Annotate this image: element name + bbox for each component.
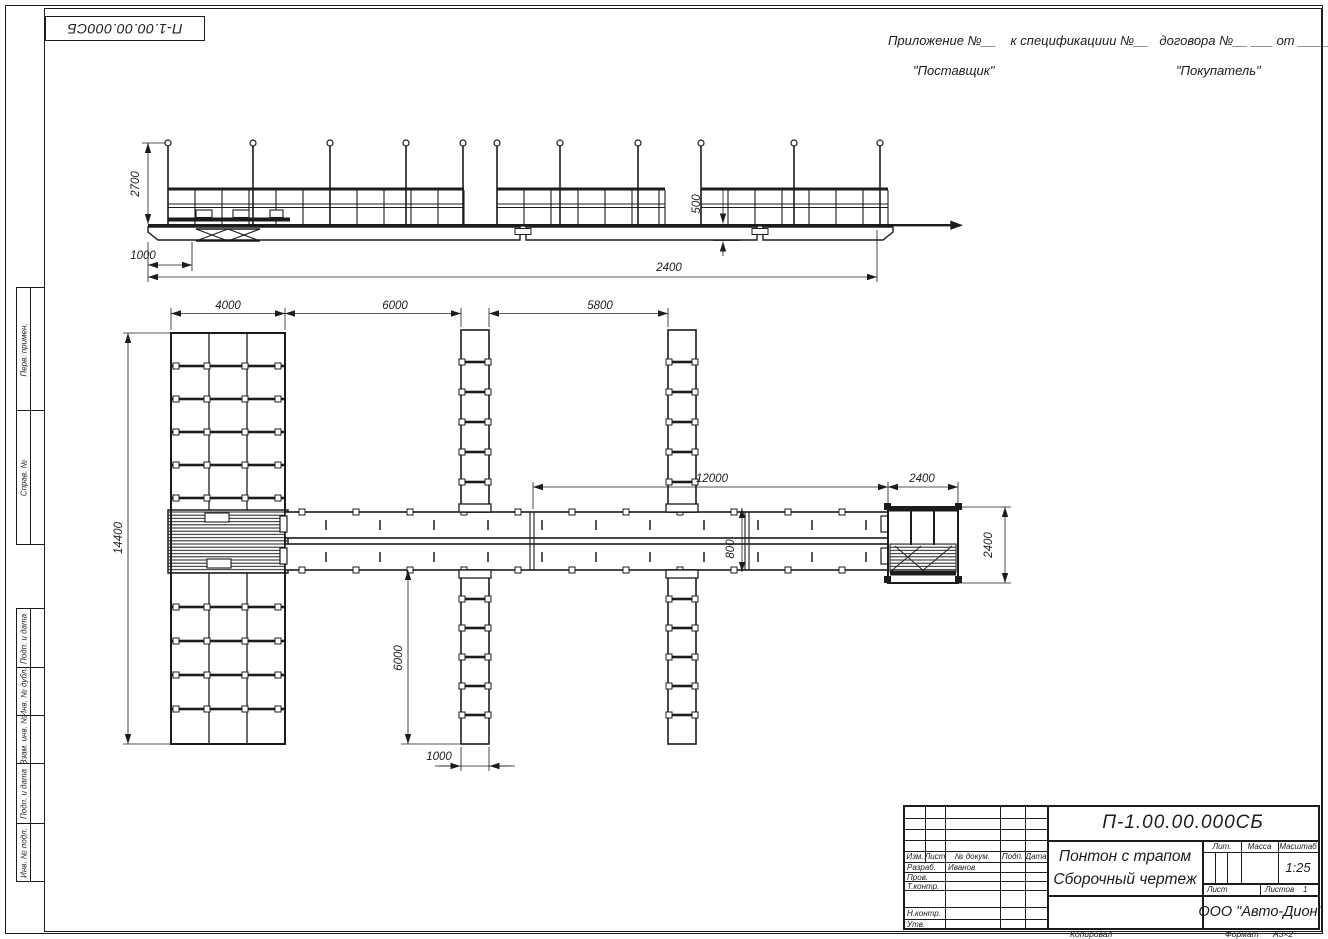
dim-plan-walkway-len: 12000 bbox=[696, 473, 729, 485]
mass-label: Масса bbox=[1241, 840, 1278, 852]
frame-column-sprav-no: Справ. № bbox=[16, 410, 45, 545]
doc-number-box: П-1.00.00.000СБ bbox=[45, 16, 205, 41]
frame-column-inv-dubl: Инв. № дубл. bbox=[16, 667, 45, 717]
titleblock-title: Понтон с трапом Сборочный чертеж bbox=[1048, 843, 1202, 893]
col-izm: Изм. bbox=[905, 851, 925, 862]
format-value: А3×2 bbox=[1273, 929, 1293, 939]
scale-label: Масштаб bbox=[1278, 840, 1318, 852]
elevation-view: 2700 1000 2400 500 bbox=[95, 120, 985, 298]
col-list: Лист bbox=[925, 851, 945, 862]
buyer-label: "Покупатель" bbox=[1176, 63, 1261, 78]
scale-value: 1:25 bbox=[1278, 852, 1318, 883]
dim-elev-length: 2400 bbox=[655, 262, 682, 274]
dim-plan-pier-width: 4000 bbox=[215, 300, 241, 312]
dim-plan-finger-len: 6000 bbox=[393, 645, 405, 671]
title-block: П-1.00.00.000СБ Понтон с трапом Сборочны… bbox=[903, 805, 1320, 930]
role-utv: Утв. bbox=[907, 920, 925, 929]
role-nkontr: Н.контр. bbox=[907, 909, 941, 918]
role-tkontr: Т.контр. bbox=[907, 882, 939, 891]
frame-column-vzam-inv: Взам. инв. № bbox=[16, 715, 45, 765]
dim-plan-bay2: 5800 bbox=[587, 300, 613, 312]
dim-plan-walkway-w: 800 bbox=[725, 539, 737, 559]
titleblock-title-line2: Сборочный чертеж bbox=[1053, 868, 1196, 891]
doc-number-rotated: П-1.00.00.000СБ bbox=[67, 21, 183, 37]
format-label: Формат bbox=[1225, 929, 1259, 939]
col-data: Дата bbox=[1025, 851, 1047, 862]
dim-plan-pier-length: 14400 bbox=[113, 521, 125, 554]
elevation-geometry bbox=[142, 140, 961, 282]
dim-plan-bay1: 6000 bbox=[382, 300, 408, 312]
sheets-label: Листов bbox=[1265, 885, 1294, 894]
plan-geometry bbox=[123, 308, 1011, 771]
plan-view: 4000 6000 5800 12000 2400 14400 6000 100… bbox=[95, 280, 1030, 785]
role-prov: Пров. bbox=[907, 873, 928, 882]
dim-plan-platform-h: 2400 bbox=[983, 532, 995, 559]
dim-elev-height: 2700 bbox=[130, 171, 142, 198]
frame-column-podp-data-1: Подп. и дата bbox=[16, 608, 45, 669]
drawing-sheet: П-1.00.00.000СБ Приложение №__ к специфи… bbox=[0, 0, 1328, 939]
sheets-value: 1 bbox=[1303, 885, 1307, 894]
sheet-label: Лист bbox=[1207, 885, 1228, 894]
supplier-label: "Поставщик" bbox=[913, 63, 995, 78]
frame-column-podp-data-2: Подп. и дата bbox=[16, 763, 45, 825]
titleblock-doc-number: П-1.00.00.000СБ bbox=[1048, 807, 1318, 839]
dim-plan-finger-w: 1000 bbox=[426, 751, 452, 763]
frame-column-perv-primen: Перв. примен. bbox=[16, 287, 45, 412]
role-razrab: Разраб. bbox=[907, 863, 936, 872]
titleblock-title-line1: Понтон с трапом bbox=[1059, 845, 1191, 868]
frame-column-inv-podl: Инв. № подл. bbox=[16, 823, 45, 882]
lit-label: Лит. bbox=[1203, 840, 1241, 852]
company-name: ООО "Авто-Дион" bbox=[1203, 895, 1318, 928]
dim-plan-platform-w: 2400 bbox=[908, 473, 935, 485]
copied-label: Копировал bbox=[1070, 929, 1112, 939]
col-dokum: № докум. bbox=[945, 851, 1000, 862]
developer-name: Иванов bbox=[948, 863, 975, 872]
elevation-dimensions bbox=[148, 143, 877, 277]
dim-elev-freeboard: 500 bbox=[691, 194, 703, 214]
col-podp: Подп. bbox=[1000, 851, 1025, 862]
appendix-line: Приложение №__ к спецификациии №__ догов… bbox=[888, 33, 1328, 48]
dim-elev-offset: 1000 bbox=[130, 250, 156, 262]
